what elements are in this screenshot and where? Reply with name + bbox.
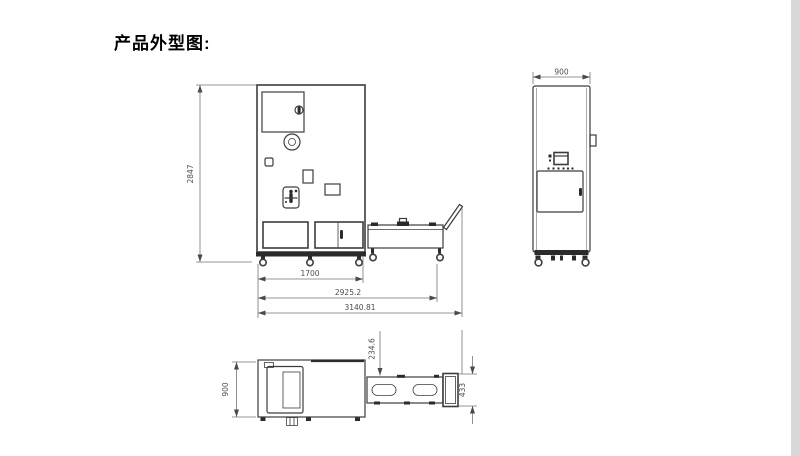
dim-trolley-width: 433 [458,330,477,424]
caster-wheels-front [260,257,362,266]
side-indicator-dots [548,168,574,170]
trolley-wheel-left [370,254,376,260]
trolley-top [367,374,458,407]
dim-label-234: 234.6 [368,338,377,360]
dim-depth-top: 900 [221,362,256,417]
trolley-handle [444,205,463,230]
trolley-slot-left [372,385,396,396]
top-door-inner [283,372,300,408]
door-lock-keyhole [298,107,301,114]
trolley-slot-right [413,385,437,396]
trolley-front [368,205,463,261]
dim-label-2925: 2925.2 [335,288,361,297]
dim-overall-height: 2847 [186,85,257,262]
top-view: 900 234.6 [221,330,477,426]
engineering-drawing: 2847 [0,0,800,456]
trolley-body [368,225,443,248]
dim-label-900-side: 900 [554,68,569,77]
label-plate-a [303,170,313,183]
round-port [284,134,300,150]
caster-wheels-side [535,256,589,266]
vent-panel-right [315,222,363,248]
dim-trolley-offset: 234.6 [368,331,381,376]
front-view: 2847 [186,85,463,318]
dim-label-3140: 3140.81 [344,303,375,312]
dim-label-1700: 1700 [300,269,319,278]
small-square-fitting [265,158,273,166]
base-rail [256,252,366,257]
dim-label-433: 433 [458,383,467,398]
side-body-outline [533,86,590,252]
dim-label-2847: 2847 [186,164,195,183]
top-bottom-fittings [261,418,361,426]
dim-label-900-top: 900 [221,382,230,397]
side-control-display [549,153,569,165]
side-door [537,171,583,212]
side-view: 900 [533,68,596,266]
trolley-top-body [367,377,443,403]
vent-handle [340,230,343,239]
dim-width-with-trolley: 2925.2 [258,264,437,302]
trolley-wheel-right [437,254,443,260]
cabinet-outline [257,85,365,252]
top-body-outline [258,360,365,417]
dim-depth-side: 900 [533,68,590,85]
label-plate-b [325,184,340,195]
latch-panel [283,187,299,208]
vent-panel-left [263,222,308,248]
top-door-outline [267,367,303,414]
side-protrusion [590,135,596,146]
side-base-rail [535,250,589,255]
round-port-inner [289,139,296,146]
side-door-handle [579,188,582,196]
